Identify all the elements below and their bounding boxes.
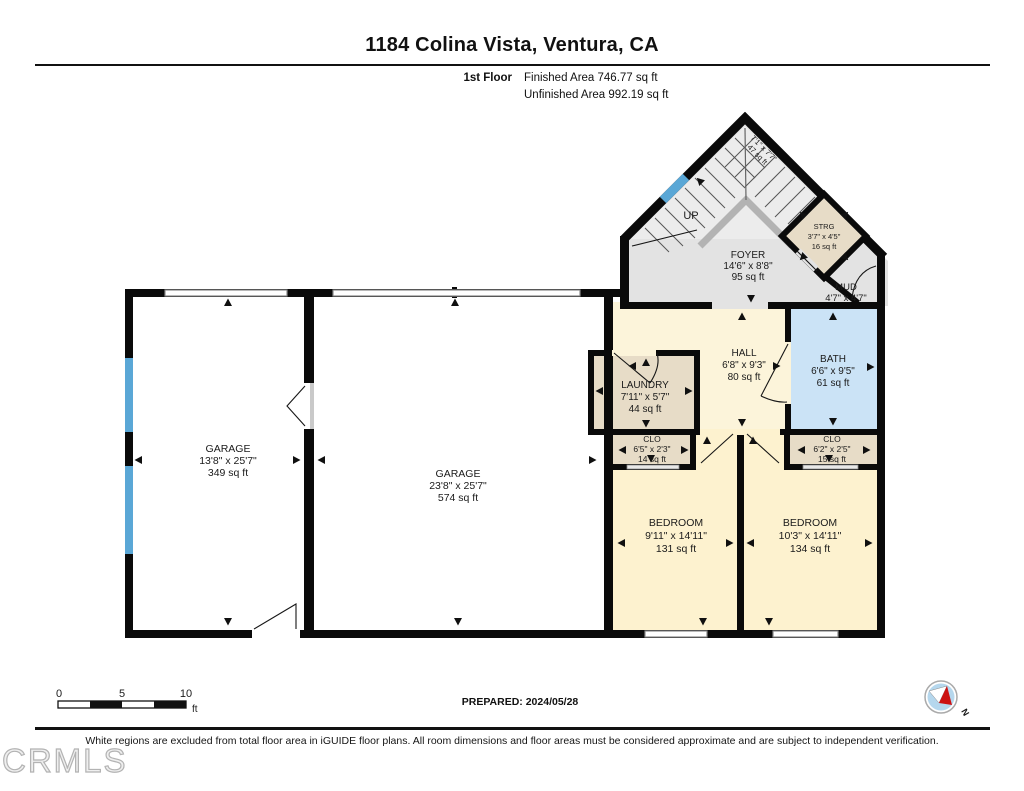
bath-label: BATH: [820, 354, 846, 365]
closet-left-label: CLO: [643, 434, 661, 444]
disclaimer-text: White regions are excluded from total fl…: [0, 735, 1024, 747]
closet-left-area: 14 sq ft: [638, 454, 667, 464]
scale-5: 5: [119, 688, 125, 700]
garage-right-label: GARAGE: [436, 468, 481, 480]
bedroom-left-label: BEDROOM: [649, 517, 703, 529]
floor-plan-drawing: GARAGE 13'8" x 25'7" 349 sq ft GARAGE 23…: [0, 0, 1024, 791]
garage-left-area: 349 sq ft: [208, 467, 248, 479]
scale-bar: 0 5 10 ft: [56, 688, 198, 715]
scale-unit: ft: [192, 704, 198, 715]
bedroom-right-dims: 10'3" x 14'11": [779, 530, 842, 542]
storage-dims: 3'7" x 4'5": [808, 232, 841, 241]
garage-left-label: GARAGE: [206, 443, 251, 455]
bedroom-right-label: BEDROOM: [783, 517, 837, 529]
footer-divider: [35, 727, 990, 730]
garage-right-area: 574 sq ft: [438, 492, 478, 504]
hall-dims: 6'8" x 9'3": [722, 360, 766, 371]
closet-right-label: CLO: [823, 434, 841, 444]
bedroom-right-area: 134 sq ft: [790, 543, 830, 555]
bedroom-left-dims: 9'11" x 14'11": [645, 530, 707, 542]
hall-area: 80 sq ft: [728, 372, 761, 383]
stairs-up-label: UP: [683, 210, 698, 222]
bath-area: 61 sq ft: [817, 378, 850, 389]
closet-right-dims: 6'2" x 2'5": [813, 444, 850, 454]
storage-label: STRG: [814, 222, 835, 231]
bedroom-left-area: 131 sq ft: [656, 543, 696, 555]
prepared-date: PREPARED: 2024/05/28: [380, 696, 660, 708]
laundry-label: LAUNDRY: [621, 380, 669, 391]
compass-icon: N: [925, 681, 971, 718]
laundry-dims: 7'11" x 5'7": [621, 392, 670, 403]
closet-left-dims: 6'5" x 2'3": [633, 444, 670, 454]
hall-label: HALL: [731, 348, 756, 359]
scale-0: 0: [56, 688, 62, 700]
compass-north-label: N: [959, 707, 971, 718]
foyer-area: 95 sq ft: [732, 272, 765, 283]
garage-right-dims: 23'8" x 25'7": [429, 480, 487, 492]
bath-dims: 6'6" x 9'5": [811, 366, 855, 377]
mud-label: MUD: [835, 282, 857, 293]
foyer-dims: 14'6" x 8'8": [723, 261, 773, 272]
floor-plan-page: 1184 Colina Vista, Ventura, CA 1st Floor…: [0, 0, 1024, 791]
mud-dims: 4'7" x 4'7": [825, 293, 867, 304]
crmls-watermark: CRMLS: [2, 742, 128, 780]
laundry-area: 44 sq ft: [629, 404, 662, 415]
storage-area: 16 sq ft: [812, 242, 838, 251]
foyer-label: FOYER: [731, 250, 765, 261]
garage-left-dims: 13'8" x 25'7": [199, 455, 257, 467]
scale-10: 10: [180, 688, 192, 700]
closet-right-area: 15 sq ft: [818, 454, 847, 464]
